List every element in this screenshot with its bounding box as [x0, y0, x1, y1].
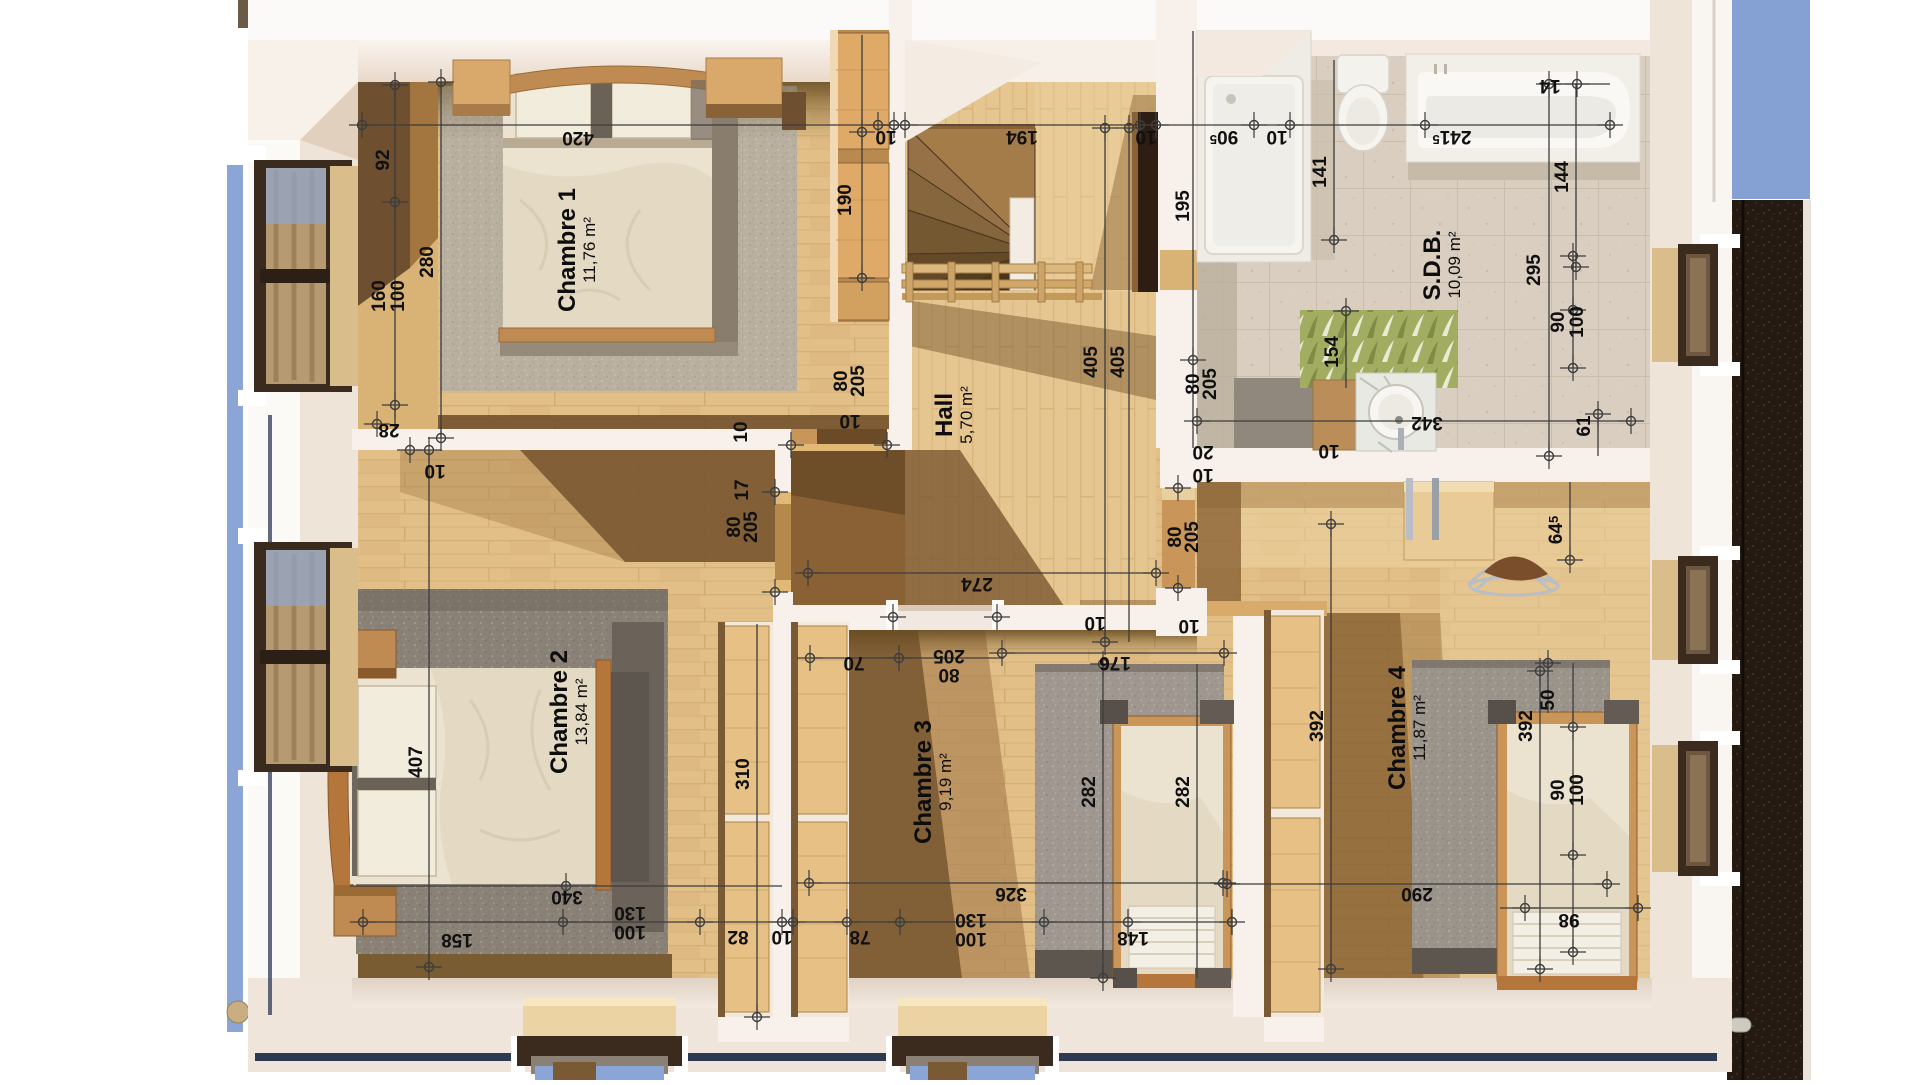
- svg-text:405: 405: [1081, 346, 1102, 378]
- svg-text:10,09 m²: 10,09 m²: [1445, 231, 1464, 298]
- svg-text:176: 176: [1099, 652, 1131, 673]
- svg-text:90: 90: [1548, 779, 1569, 800]
- svg-text:13,84 m²: 13,84 m²: [572, 678, 591, 745]
- svg-text:148: 148: [1117, 927, 1149, 948]
- svg-text:144: 144: [1552, 161, 1573, 193]
- svg-text:407: 407: [406, 746, 427, 778]
- svg-text:195: 195: [1173, 190, 1194, 222]
- svg-text:S.D.B.: S.D.B.: [1419, 230, 1446, 301]
- svg-text:205: 205: [1200, 368, 1221, 400]
- svg-text:100: 100: [388, 280, 409, 312]
- svg-text:61: 61: [1574, 415, 1595, 437]
- svg-text:405: 405: [1108, 346, 1129, 378]
- svg-text:392: 392: [1307, 710, 1328, 742]
- svg-text:10: 10: [424, 460, 445, 481]
- svg-text:20: 20: [1192, 441, 1213, 462]
- svg-text:290: 290: [1401, 883, 1433, 904]
- svg-text:160: 160: [369, 280, 390, 312]
- svg-text:10: 10: [1266, 126, 1287, 147]
- svg-text:295: 295: [1524, 254, 1545, 286]
- svg-text:80: 80: [938, 664, 959, 685]
- svg-text:420: 420: [562, 127, 594, 148]
- svg-text:17: 17: [732, 479, 753, 500]
- svg-text:90: 90: [1548, 311, 1569, 332]
- svg-text:10: 10: [1135, 126, 1156, 147]
- svg-text:14: 14: [1539, 75, 1561, 96]
- svg-text:392: 392: [1516, 710, 1537, 742]
- svg-text:28: 28: [378, 419, 399, 440]
- svg-text:10: 10: [1084, 612, 1105, 633]
- svg-text:Chambre 2: Chambre 2: [546, 650, 573, 774]
- svg-text:326: 326: [995, 883, 1027, 904]
- svg-text:10: 10: [875, 126, 896, 147]
- svg-text:10: 10: [839, 410, 860, 431]
- svg-text:130: 130: [614, 902, 646, 923]
- svg-text:Hall: Hall: [931, 393, 958, 437]
- svg-text:205: 205: [848, 365, 869, 397]
- svg-text:100: 100: [1567, 774, 1588, 806]
- svg-text:282: 282: [1079, 776, 1100, 808]
- svg-text:9,19 m²: 9,19 m²: [936, 753, 955, 811]
- svg-text:10: 10: [1192, 464, 1213, 485]
- svg-text:342: 342: [1411, 412, 1443, 433]
- svg-text:92: 92: [373, 149, 394, 170]
- svg-text:82: 82: [727, 926, 748, 947]
- svg-text:205: 205: [741, 511, 762, 543]
- svg-text:70: 70: [843, 652, 864, 673]
- svg-text:154: 154: [1322, 336, 1343, 368]
- svg-text:194: 194: [1006, 126, 1038, 147]
- svg-text:340: 340: [551, 886, 583, 907]
- svg-text:Chambre 3: Chambre 3: [910, 720, 937, 844]
- svg-text:141: 141: [1310, 156, 1331, 188]
- svg-text:158: 158: [441, 929, 473, 950]
- svg-text:100: 100: [1567, 306, 1588, 338]
- svg-text:205: 205: [1182, 521, 1203, 553]
- svg-text:205: 205: [933, 645, 965, 666]
- svg-text:280: 280: [417, 246, 438, 278]
- svg-text:282: 282: [1173, 776, 1194, 808]
- svg-text:130: 130: [955, 909, 987, 930]
- svg-text:100: 100: [614, 921, 646, 942]
- svg-text:10: 10: [1178, 615, 1199, 636]
- svg-text:190: 190: [835, 184, 856, 216]
- svg-text:11,76 m²: 11,76 m²: [580, 217, 599, 283]
- svg-text:10: 10: [1318, 440, 1339, 461]
- svg-text:98: 98: [1558, 909, 1579, 930]
- svg-text:10: 10: [771, 926, 792, 947]
- svg-text:310: 310: [733, 758, 754, 790]
- svg-text:274: 274: [961, 573, 993, 594]
- svg-text:Chambre 1: Chambre 1: [554, 188, 581, 312]
- svg-text:11,87 m²: 11,87 m²: [1410, 695, 1429, 761]
- svg-text:78: 78: [849, 926, 870, 947]
- svg-text:Chambre 4: Chambre 4: [1384, 665, 1411, 790]
- svg-text:5,70 m²: 5,70 m²: [957, 386, 976, 444]
- svg-text:50: 50: [1538, 689, 1559, 710]
- svg-text:10: 10: [731, 421, 752, 442]
- svg-text:100: 100: [955, 928, 987, 949]
